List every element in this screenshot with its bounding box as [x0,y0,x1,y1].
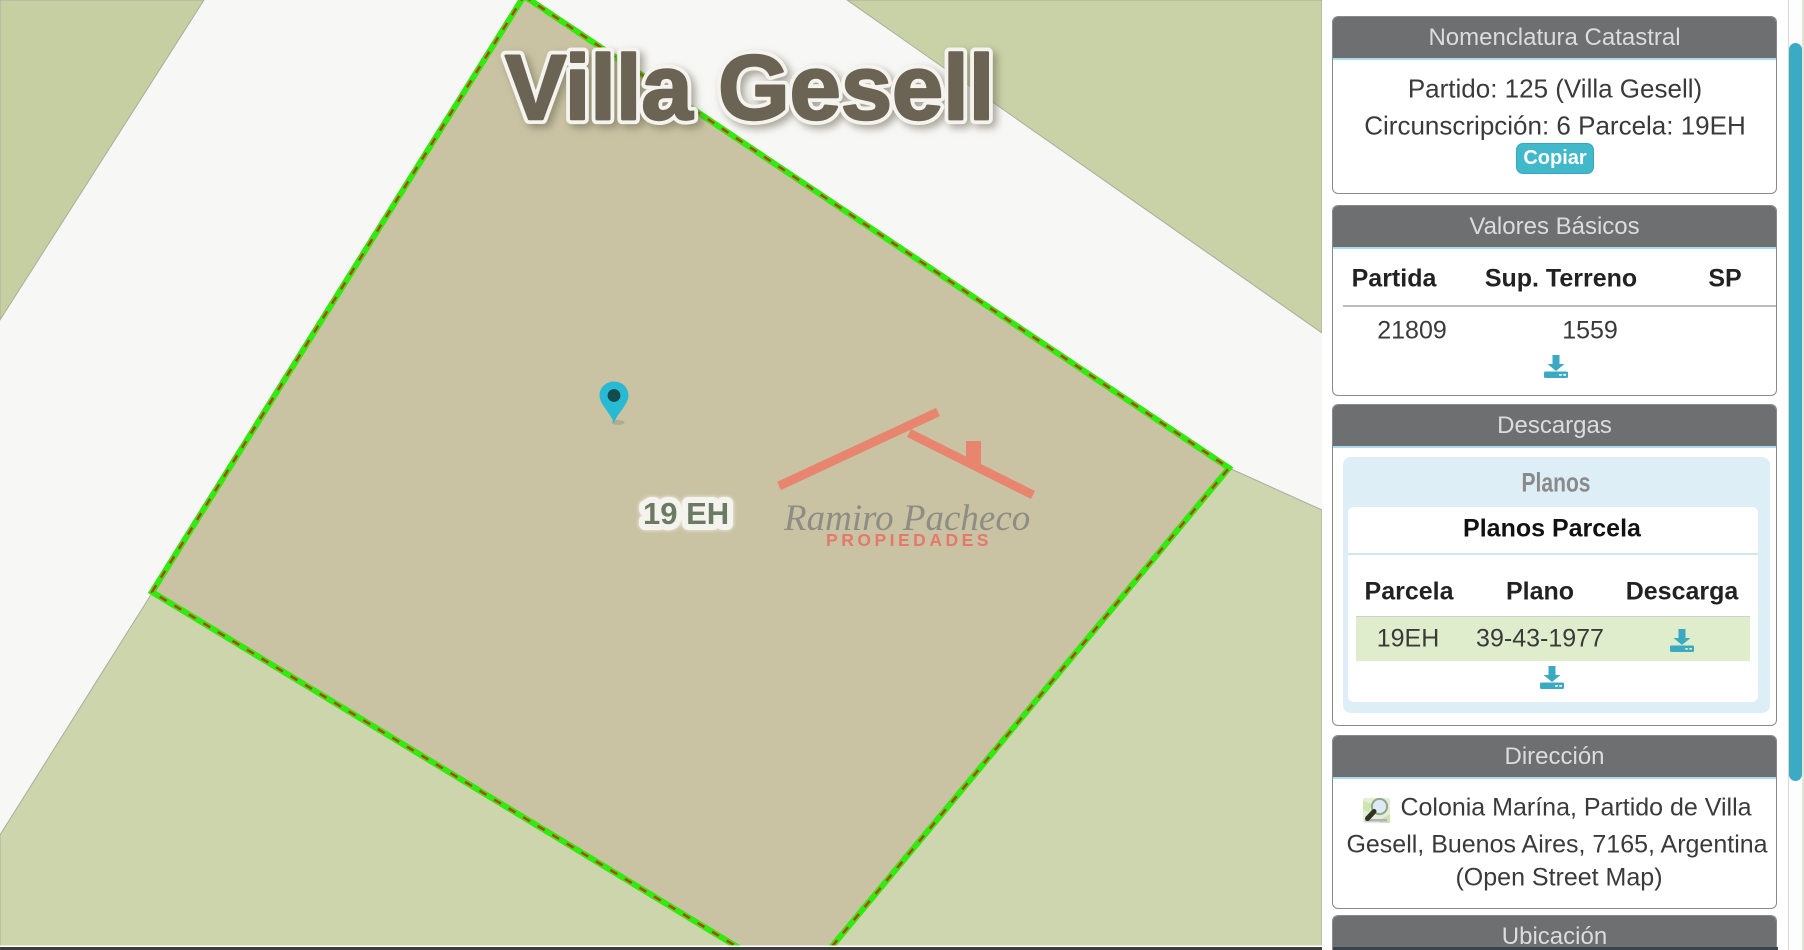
svg-text:Villa Gesell: Villa Gesell [505,37,994,139]
svg-text:PROPIEDADES: PROPIEDADES [826,530,992,550]
svg-text:19 EH: 19 EH [643,496,729,531]
